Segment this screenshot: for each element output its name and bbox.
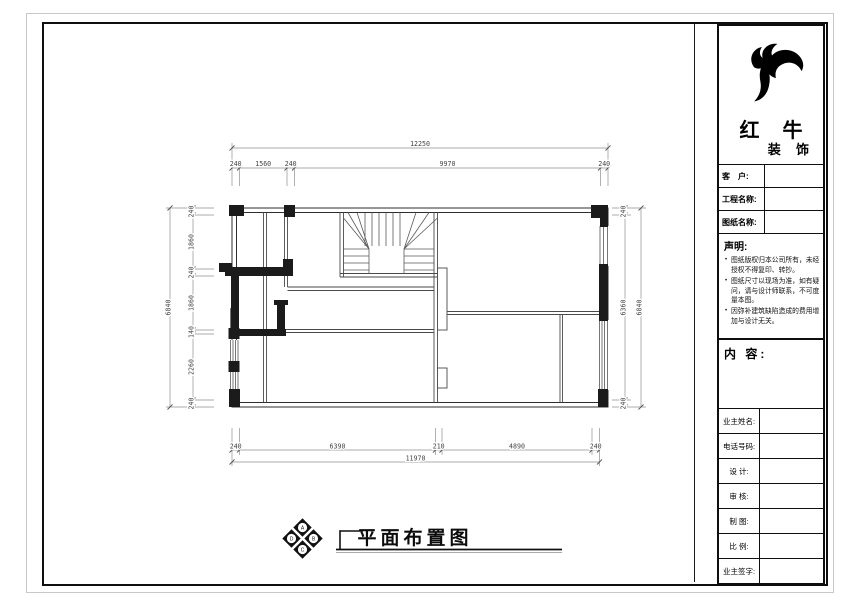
row-label: 审 核: (719, 484, 760, 508)
row-label: 电话号码: (719, 434, 760, 458)
statement-title: 声明: (724, 238, 820, 253)
row-label: 业主签字: (719, 559, 760, 583)
table-row-owner-signature: 业主签字: (719, 558, 823, 583)
field-label: 图纸名称: (719, 211, 765, 233)
table-row-design: 设 计: (719, 458, 823, 483)
dim-right-seg: 240 (620, 398, 628, 410)
content-section: 内 容: (719, 338, 823, 408)
dim-top-seg: 1560 (255, 160, 271, 168)
field-value (765, 188, 823, 210)
dim-left-seg: 1860 (188, 295, 196, 311)
row-label: 设 计: (719, 459, 760, 483)
field-row-project-name: 工程名称: (719, 187, 823, 210)
row-value (760, 559, 823, 583)
dim-top-total: 12250 (410, 140, 430, 148)
row-value (760, 509, 823, 533)
floor-plan-partitions (264, 213, 600, 403)
dim-left-seg: 2260 (188, 359, 196, 375)
title-block: 红 牛 装 饰 客 户: 工程名称: 图纸名称: 声明: 图纸版权归本公司所有，… (717, 24, 825, 585)
dim-bottom-seg: 6390 (330, 443, 346, 451)
dim-bottom-seg: 210 (433, 443, 445, 451)
window-symbols (230, 226, 609, 391)
dim-bottom-seg: 240 (230, 443, 242, 451)
dim-left-seg: 140 (188, 326, 196, 338)
statement-section: 声明: 图纸版权归本公司所有，未经授权不得复印、转抄。 图纸尺寸以现场为准，如有… (719, 233, 823, 338)
field-row-client: 客 户: (719, 164, 823, 187)
dim-top-seg: 240 (285, 160, 297, 168)
table-row-review: 审 核: (719, 483, 823, 508)
content-label: 内 容: (724, 345, 823, 362)
floor-plan-walls (232, 208, 608, 407)
row-label: 业主姓名: (719, 409, 760, 433)
bull-logo-icon (737, 34, 807, 116)
dim-bottom-total: 11970 (406, 455, 426, 463)
dim-top-seg: 9970 (440, 160, 456, 168)
dim-right-seg: 6360 (620, 300, 628, 316)
field-row-drawing-name: 图纸名称: (719, 210, 823, 233)
signature-table: 业主姓名: 电话号码: 设 计: 审 核: 制 图: 比 例: 业主签字: (719, 408, 823, 583)
row-value (760, 434, 823, 458)
row-value (760, 409, 823, 433)
dim-left-seg: 240 (188, 267, 196, 279)
field-label: 工程名称: (719, 188, 765, 210)
dim-left-seg: 240 (188, 206, 196, 218)
company-logo-area: 红 牛 装 饰 (719, 26, 823, 164)
row-value (760, 459, 823, 483)
statement-item: 图纸尺寸以现场为准，如有疑问，请与设计师联系，不可度量本图。 (724, 277, 820, 307)
brand-subname: 装 饰 (768, 139, 815, 158)
statement-item: 因弥补建筑缺陷造成的费用增加与设计无关。 (724, 307, 820, 327)
table-row-drafting: 制 图: (719, 508, 823, 533)
sheet-title: 平面布置图 (357, 526, 472, 549)
drawing-sheet: { "title_block": { "logo": { "name_main"… (0, 0, 860, 608)
sheet-title-group: A B C D 平面布置图 (282, 518, 562, 558)
statement-item: 图纸版权归本公司所有，未经授权不得复印、转抄。 (724, 256, 820, 276)
dim-top-seg: 240 (598, 160, 610, 168)
dim-top-seg: 240 (230, 160, 242, 168)
table-row-scale: 比 例: (719, 533, 823, 558)
table-row-owner-name: 业主姓名: (719, 409, 823, 433)
field-label: 客 户: (719, 165, 765, 187)
row-label: 比 例: (719, 534, 760, 558)
row-value (760, 484, 823, 508)
dim-left-seg: 240 (188, 398, 196, 410)
compass-letter: D (290, 536, 294, 542)
dim-left-total: 6840 (165, 300, 173, 316)
row-value (760, 534, 823, 558)
field-value (765, 165, 823, 187)
dim-left-seg: 1860 (188, 234, 196, 250)
table-row-phone: 电话号码: (719, 433, 823, 458)
row-label: 制 图: (719, 509, 760, 533)
dim-bottom-seg: 4890 (509, 443, 525, 451)
compass-symbol: A B C D (282, 518, 322, 558)
dim-right-seg: 240 (620, 206, 628, 218)
field-value (765, 211, 823, 233)
dim-bottom-seg: 240 (590, 443, 602, 451)
compass-letter: C (301, 547, 305, 553)
staircase (344, 213, 438, 274)
dim-right-total: 6840 (636, 300, 644, 316)
